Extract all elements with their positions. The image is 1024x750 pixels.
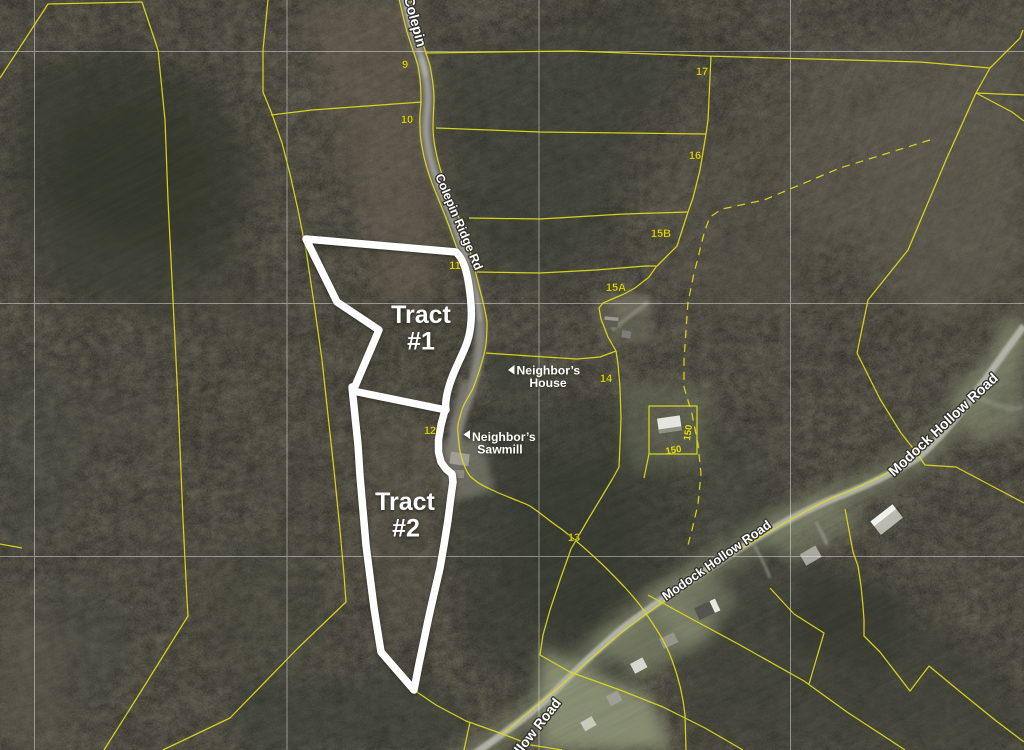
svg-text:14: 14 [600,373,613,385]
svg-text:10: 10 [401,114,413,126]
svg-text:Sawmill: Sawmill [477,443,522,457]
svg-text:12: 12 [424,425,436,437]
svg-text:11: 11 [449,260,461,272]
svg-text:#1: #1 [407,328,435,356]
svg-text:15A: 15A [606,282,626,294]
svg-text:16: 16 [689,150,701,162]
svg-text:#2: #2 [392,515,420,543]
svg-text:150: 150 [682,424,695,441]
svg-text:Tract: Tract [375,488,435,516]
svg-text:Tract: Tract [391,301,451,329]
svg-text:13: 13 [568,532,580,544]
svg-text:House: House [529,376,566,390]
svg-text:9: 9 [402,59,408,71]
svg-text:15B: 15B [651,228,671,240]
svg-text:17: 17 [696,66,708,78]
